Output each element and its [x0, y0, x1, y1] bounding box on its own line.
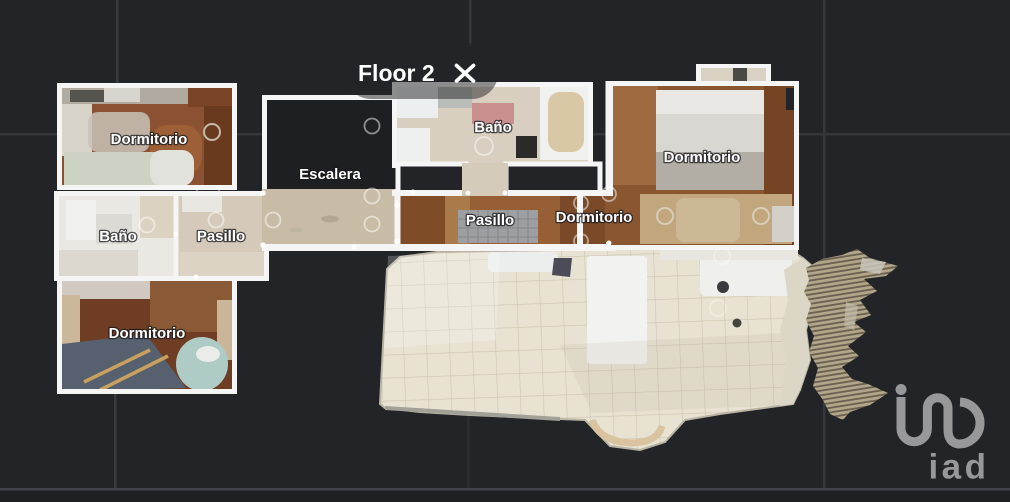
- svg-text:Pasillo: Pasillo: [466, 212, 514, 229]
- svg-text:Baño: Baño: [474, 119, 512, 136]
- svg-text:Baño: Baño: [99, 228, 137, 245]
- svg-text:Dormitorio: Dormitorio: [556, 209, 633, 226]
- svg-text:Dormitorio: Dormitorio: [111, 131, 188, 148]
- svg-text:Floor 2: Floor 2: [358, 60, 435, 86]
- svg-text:Dormitorio: Dormitorio: [664, 149, 741, 166]
- svg-text:Escalera: Escalera: [299, 166, 361, 183]
- svg-text:Pasillo: Pasillo: [197, 228, 245, 245]
- svg-text:Dormitorio: Dormitorio: [109, 325, 186, 342]
- svg-text:iad: iad: [928, 448, 989, 487]
